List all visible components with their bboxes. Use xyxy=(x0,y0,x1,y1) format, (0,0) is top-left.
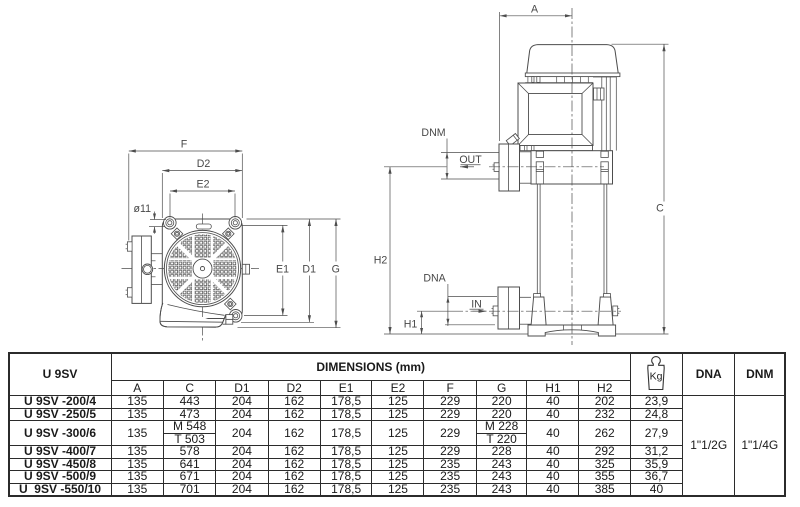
svg-text:H1: H1 xyxy=(404,319,418,331)
svg-text:Kg: Kg xyxy=(650,371,663,383)
svg-text:D1: D1 xyxy=(302,264,316,276)
svg-text:C: C xyxy=(656,203,664,215)
svg-text:IN: IN xyxy=(471,299,482,311)
svg-text:DNM: DNM xyxy=(421,127,445,139)
svg-text:D2: D2 xyxy=(197,158,211,170)
svg-text:E1: E1 xyxy=(276,264,289,276)
svg-text:E2: E2 xyxy=(197,179,210,191)
svg-text:A: A xyxy=(531,3,539,15)
svg-text:DNA: DNA xyxy=(423,273,446,285)
svg-text:ø11: ø11 xyxy=(134,203,152,215)
svg-text:OUT: OUT xyxy=(459,154,482,166)
svg-text:H2: H2 xyxy=(374,255,388,267)
svg-text:G: G xyxy=(332,264,340,276)
svg-text:F: F xyxy=(181,139,188,151)
